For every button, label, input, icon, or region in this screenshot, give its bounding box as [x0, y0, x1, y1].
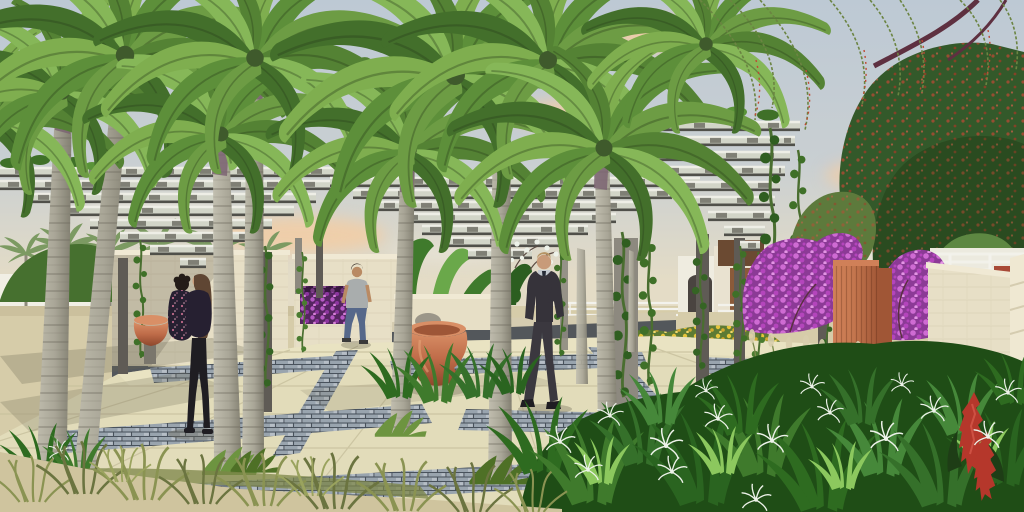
- shoe: [202, 429, 213, 434]
- white-blossom-tree-part-part: [520, 256, 524, 260]
- plume-grass-part-part: [749, 329, 755, 343]
- orange-pillar-top: [833, 260, 879, 266]
- head: [537, 255, 551, 269]
- white-blossom-tree-part-part: [553, 251, 558, 256]
- couple-part: [179, 274, 186, 281]
- pergola-post: [295, 238, 302, 294]
- plume-grass-part-part: [768, 333, 774, 347]
- suit-jacket: [525, 271, 564, 322]
- shoe: [359, 340, 368, 344]
- garden-render: [0, 0, 1024, 512]
- white-blossom-tree-part-part: [524, 247, 529, 252]
- canopy-foliage-part: [757, 110, 779, 121]
- crown-center: [596, 140, 613, 157]
- crown-center: [699, 37, 713, 51]
- pergola-post: [118, 258, 128, 374]
- head: [352, 267, 362, 277]
- white-blossom-tree-part-part: [534, 239, 539, 244]
- woman-top: [186, 290, 212, 338]
- stone-wall-far-right: [1010, 254, 1024, 370]
- wall-cap: [292, 254, 400, 259]
- shoe: [342, 338, 351, 342]
- render-viewport: [0, 0, 1024, 512]
- shoe: [184, 428, 195, 433]
- urn-area-part: [414, 325, 460, 336]
- white-blossom-tree-part-part: [544, 245, 549, 250]
- white-blossom-tree-part-part: [514, 241, 519, 246]
- t-shirt: [346, 279, 369, 308]
- couple-pot: [134, 315, 168, 325]
- crown-center: [246, 49, 264, 67]
